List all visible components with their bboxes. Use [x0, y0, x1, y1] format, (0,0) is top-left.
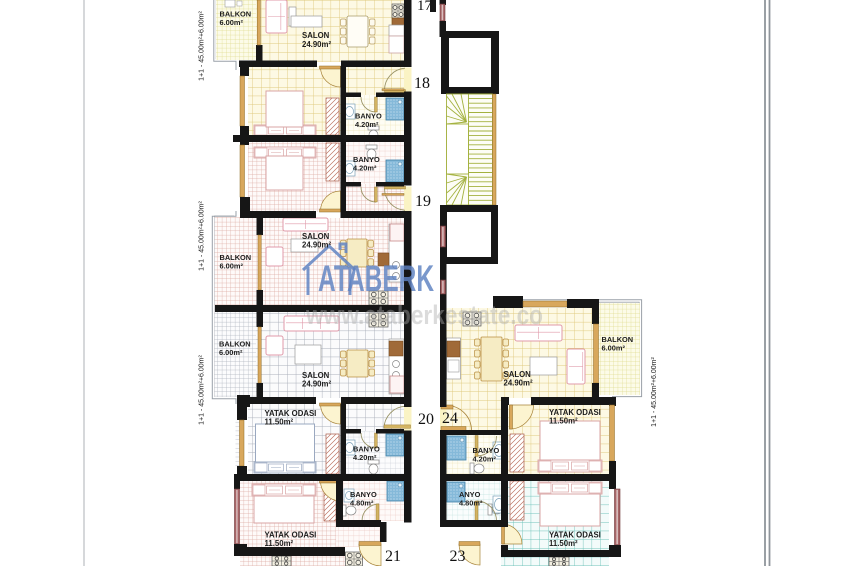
svg-text:4.80m²: 4.80m² [459, 499, 483, 508]
svg-text:11.50m²: 11.50m² [265, 539, 294, 548]
svg-text:23: 23 [450, 548, 466, 565]
svg-text:1+1 - 45.00m²+6.00m²: 1+1 - 45.00m²+6.00m² [199, 11, 206, 81]
svg-text:4.20m²: 4.20m² [353, 164, 377, 173]
svg-text:SALON: SALON [302, 31, 330, 40]
svg-text:18: 18 [414, 75, 430, 92]
svg-text:6.00m²: 6.00m² [220, 18, 244, 27]
svg-text:24.90m²: 24.90m² [302, 380, 331, 389]
svg-text:17: 17 [417, 0, 433, 14]
svg-text:www.ataberkestate.co: www.ataberkestate.co [305, 300, 543, 330]
svg-text:24: 24 [442, 410, 458, 427]
svg-text:1+1 - 45.00m²+6.00m²: 1+1 - 45.00m²+6.00m² [651, 357, 658, 427]
svg-text:1+1 - 45.00m²+6.00m²: 1+1 - 45.00m²+6.00m² [199, 355, 206, 425]
svg-text:4.20m²: 4.20m² [473, 455, 497, 464]
svg-text:24.90m²: 24.90m² [302, 40, 331, 49]
svg-text:6.00m²: 6.00m² [602, 344, 626, 353]
svg-text:4.20m²: 4.20m² [355, 120, 379, 129]
svg-text:21: 21 [385, 548, 401, 565]
svg-text:ATABERK: ATABERK [318, 258, 434, 299]
svg-text:6.00m²: 6.00m² [220, 262, 244, 271]
svg-text:6.00m²: 6.00m² [219, 348, 243, 357]
svg-text:4.20m²: 4.20m² [353, 453, 377, 462]
svg-text:11.50m²: 11.50m² [265, 418, 294, 427]
svg-text:11.50m²: 11.50m² [549, 417, 578, 426]
svg-text:1+1 - 45.00m²+6.00m²: 1+1 - 45.00m²+6.00m² [199, 201, 206, 271]
svg-text:4.80m²: 4.80m² [350, 499, 374, 508]
svg-text:11.50m²: 11.50m² [549, 539, 578, 548]
svg-text:19: 19 [415, 193, 431, 210]
svg-text:24.90m²: 24.90m² [302, 241, 331, 250]
svg-text:24.90m²: 24.90m² [504, 379, 533, 388]
svg-text:20: 20 [418, 411, 434, 428]
